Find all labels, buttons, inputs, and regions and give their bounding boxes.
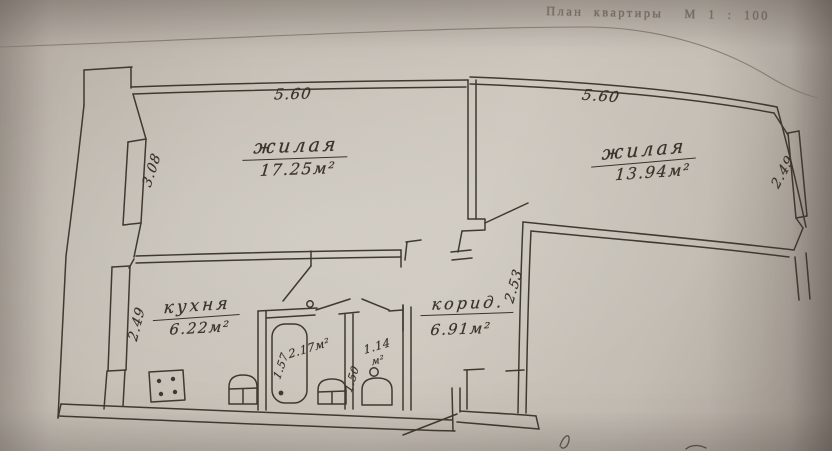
water-heater-icon	[229, 375, 257, 404]
window-room1-left	[123, 139, 146, 257]
dim-living1-width: 5.60	[273, 84, 312, 103]
room-corridor-name: корид.	[420, 292, 515, 316]
window-room2-right	[788, 131, 807, 218]
stove-icon	[149, 370, 185, 402]
room-corridor-area: 6.91м²	[430, 319, 493, 339]
interior-walls	[136, 80, 531, 413]
room-living1-name-text: жилая	[242, 133, 349, 161]
room-corridor-name-text: корид.	[420, 292, 515, 316]
room-living1-area: 17.25м²	[259, 158, 337, 180]
room-kitchen-area: 6.22м²	[169, 317, 231, 338]
toilet-icon	[362, 368, 392, 405]
door-entrance	[403, 414, 457, 435]
dim-living2-width: 5.60	[580, 86, 621, 106]
apartment-plan-photo: План квартиры М 1 : 100 5.60 жилая 17.25…	[0, 0, 832, 451]
room-living1-name: жилая	[242, 133, 349, 161]
door-wc	[362, 299, 389, 310]
sink-icon	[318, 379, 346, 404]
door-room2	[485, 203, 528, 223]
floor-plan-drawing	[0, 0, 832, 451]
outer-walls	[58, 67, 810, 431]
handwriting-mark	[560, 436, 706, 449]
